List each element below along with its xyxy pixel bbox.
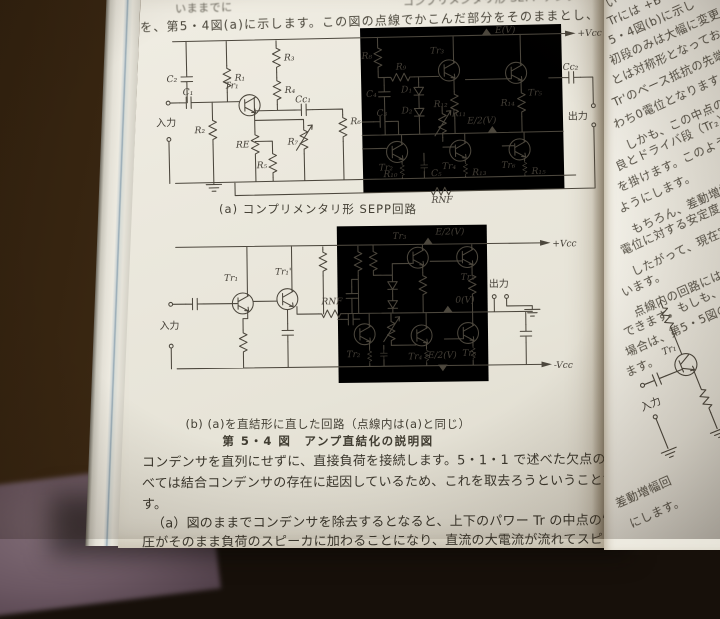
label-tr1: Tr₁	[660, 342, 678, 358]
transistor-tr1-symbol	[239, 94, 261, 116]
label-r4: R₄	[284, 86, 296, 96]
resistor-re-symbol	[251, 132, 259, 159]
capacitor-cc2-symbol	[562, 71, 580, 83]
label-tr1: Tr₁	[224, 274, 238, 284]
label-rnf: RNF	[320, 297, 343, 307]
label-r15: R₁₅	[530, 167, 546, 177]
input-terminal	[653, 414, 658, 419]
capacitor-c1-symbol	[179, 97, 197, 109]
ground-icon	[661, 447, 678, 459]
caption-a: (a) コンプリメンタリ形 SEPP回路	[118, 201, 518, 217]
capacitor-symbol	[646, 370, 668, 388]
label-cc1: Cc₁	[295, 95, 311, 105]
input-terminal	[640, 383, 645, 388]
input-terminal	[167, 138, 171, 142]
body-text-line: 圧がそのまま負荷のスピーカに加わることになり、直流の大電流が流れてスピー	[142, 528, 586, 550]
input-terminal	[166, 101, 170, 105]
label-r3: R₃	[283, 53, 295, 63]
label-r13: R₁₃	[471, 168, 487, 178]
label-r7: R₇	[287, 137, 299, 147]
left-page: いままでに コンプリメンタリ形 SEPP アンプ を、第5・4図(a)に示します…	[118, 0, 605, 548]
capacitor-symbol	[282, 324, 294, 342]
label-d2: D₂	[400, 106, 412, 116]
ground-icon	[206, 184, 221, 191]
body-text-line: べては結合コンデンサの存在に起因しているため、これを取去ろうということで	[142, 469, 586, 491]
ground-icon	[525, 309, 540, 316]
label-r12: R₁₂	[433, 100, 449, 110]
input-capacitor-symbol	[186, 298, 204, 310]
output-terminal	[492, 295, 496, 299]
ground-icon	[710, 427, 720, 439]
circuit-a-schematic: 入力 C₁ C₂ R₁ R₂ Tr₁ RE R₅ R₇ R₃ R₄ Cc₁ R₆…	[153, 17, 607, 210]
label-ev: E(V)	[494, 25, 516, 36]
label-tr5: Tr₅	[461, 273, 475, 283]
label-tr2: Tr₂	[347, 350, 361, 360]
label-input: 入力	[156, 116, 176, 129]
body-text-line: コンデンサを直列にせずに、直接負荷を接続します。5・1・1 で述べた欠点のす	[142, 448, 586, 470]
label-input: 入力	[639, 394, 663, 414]
input-terminal	[169, 344, 173, 348]
label-tr4: Tr₄	[442, 162, 457, 172]
label-d1: D₁	[400, 85, 412, 95]
transistor-tr1p-symbol	[277, 289, 298, 310]
photo-scene: いままでに コンプリメンタリ形 SEPP アンプ を、第5・4図(a)に示します…	[0, 0, 720, 539]
output-terminal	[505, 295, 509, 299]
label-r11: R₁₁	[451, 109, 466, 119]
label-cc2: Cc₂	[563, 63, 579, 73]
capacitor-symbol	[520, 325, 532, 343]
vee-arrow	[542, 361, 553, 367]
resistor-r6-symbol	[339, 115, 347, 142]
label-output: 出力	[489, 277, 509, 290]
top-line1-left: いままでに	[175, 0, 233, 16]
resistor-symbol	[658, 304, 676, 333]
figure-caption: 第 5・4 図 アンプ直結化の説明図	[118, 433, 538, 449]
label-re: RE	[235, 140, 250, 150]
input-terminal	[169, 302, 173, 306]
right-page: い Trには +B 5・4図(b)に示し 初段のみは大幅に変更 とは対称形となっ…	[604, 0, 720, 550]
label-tr3: Tr₃	[430, 46, 445, 56]
label-vee: -Vcc	[554, 361, 573, 371]
label-me2v: -E/2(V)	[425, 350, 458, 361]
label-zerov: 0(V)	[455, 295, 475, 306]
capacitor-cc1-symbol	[295, 104, 313, 116]
circuit-b-schematic: +Vcc -Vcc 入力 Tr₁ Tr₁' RNF Tr₃ E/2(V) Tr₅…	[147, 217, 595, 401]
label-c2: C₂	[167, 75, 178, 85]
label-r9: R₉	[395, 62, 407, 72]
label-r2: R₂	[194, 126, 206, 136]
label-tr1: Tr₁	[224, 81, 238, 91]
resistor-r4-symbol	[273, 78, 281, 105]
label-e2v: E/2(V)	[434, 226, 464, 237]
resistor-r3-symbol	[272, 45, 280, 72]
label-tr6: Tr₆	[462, 349, 476, 359]
resistor-r5-symbol	[269, 151, 277, 178]
label-c5: C₅	[431, 169, 442, 179]
label-tr5: Tr₅	[528, 88, 543, 98]
label-r8: R₈	[361, 52, 373, 62]
resistor-symbol	[697, 385, 715, 414]
resistor-r7-symbol	[300, 127, 308, 154]
caption-b: (b) (a)を直結形に直した回路（点線内は(a)と同じ）	[118, 416, 538, 432]
label-r6: R₆	[349, 117, 361, 127]
label-c1: C₁	[183, 88, 194, 98]
vcc-arrow	[540, 240, 551, 246]
label-input: 入力	[159, 319, 179, 332]
vcc-arrow	[565, 30, 576, 36]
label-vcc: +Vcc	[552, 239, 576, 249]
label-c4: C₄	[366, 90, 377, 100]
label-e2v: E/2(V)	[466, 115, 497, 127]
resistor-r2-symbol	[209, 117, 217, 144]
label-tr6: Tr₆	[501, 161, 516, 171]
label-r14: R₁₄	[500, 98, 516, 108]
resistor-symbol	[239, 330, 247, 357]
label-tr1p: Tr₁'	[275, 267, 292, 277]
label-tr3: Tr₃	[393, 232, 407, 242]
capacitor-c2-symbol	[181, 70, 193, 88]
label-c3: C₃	[377, 109, 388, 119]
label-r10: R₁₀	[382, 170, 398, 180]
resistor-symbol	[319, 249, 327, 276]
label-r5: R₅	[256, 161, 268, 171]
label-output: 出力	[568, 109, 588, 122]
label-tr4: Tr₄	[408, 352, 422, 362]
